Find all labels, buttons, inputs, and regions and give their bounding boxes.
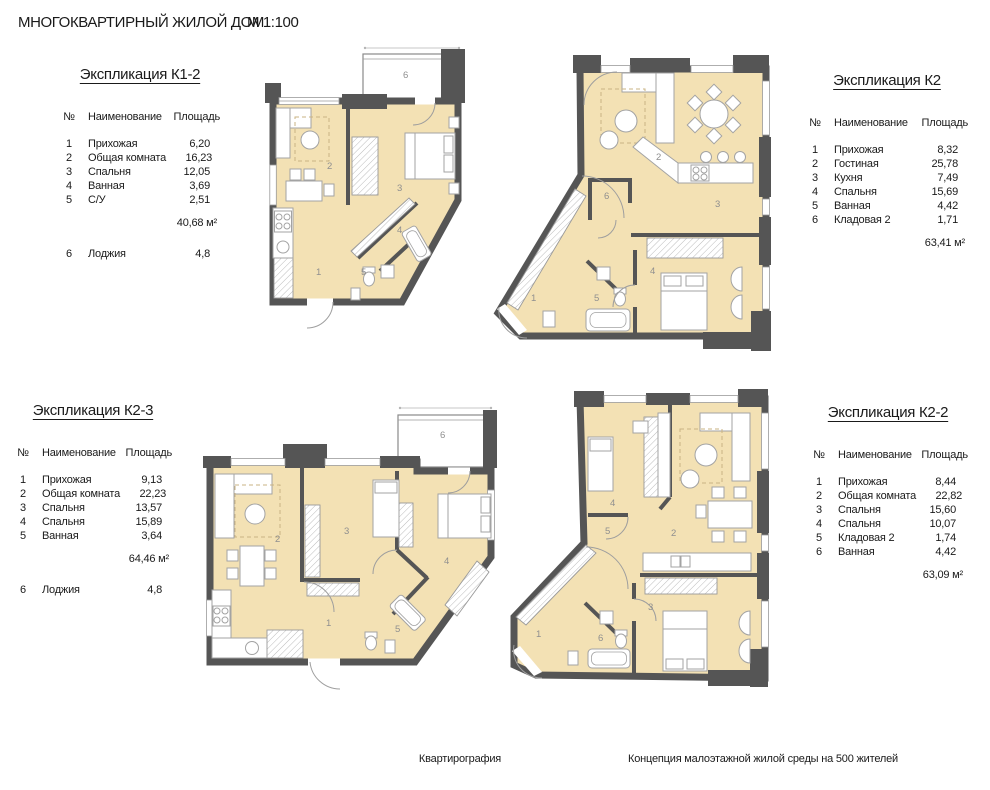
row-area: 15,89 [116,515,172,529]
row-num: 3 [14,501,32,515]
table-title: Экспликация К1-2 [60,66,220,82]
row-name: С/У [78,193,164,207]
coffee-table [695,444,717,466]
bar-stool [701,152,712,163]
sofa [215,474,234,538]
row-name: Общая комната [78,151,166,165]
pillow [444,155,453,172]
table-total: 63,41 м² [806,236,968,250]
footer-right: Концепция малоэтажной жилой среды на 500… [628,753,878,765]
row-area: 3,69 [164,179,220,193]
row-name: Гостиная [824,157,912,171]
table-row: 3Спальня15,60 [810,503,966,517]
room-label: 4 [397,225,402,236]
table-total: 40,68 м² [60,216,220,230]
dining-table [700,100,728,128]
sheet-scale: М 1:100 [247,14,298,31]
row-name: Лоджия [78,247,164,261]
room-label: 6 [598,633,603,644]
row-name: Общая комната [828,489,916,503]
row-num: 5 [810,531,828,545]
row-name: Спальня [32,515,116,529]
row-area: 8,44 [910,475,966,489]
pillow [686,276,703,286]
table-header: № Наименование Площадь [14,446,172,460]
table-row: 2Общая комната22,23 [14,487,172,501]
room-label: 4 [444,556,449,567]
room-label: 3 [648,602,653,613]
room-label: 6 [403,70,408,81]
room-label: 1 [531,293,536,304]
chair [734,531,746,542]
room-label: 3 [715,199,720,210]
row-num: 5 [14,529,32,543]
room-label: 6 [440,430,445,441]
pillow [375,482,397,493]
row-area: 1,74 [910,531,966,545]
chair [734,487,746,498]
table-title: Экспликация К2-3 [14,402,172,418]
row-name: Лоджия [32,583,116,597]
row-area: 25,78 [912,157,968,171]
row-area: 1,71 [912,213,968,227]
col-name: Наименование [32,446,116,460]
row-area: 16,23 [166,151,222,165]
sink [351,288,360,300]
row-num: 1 [60,137,78,151]
row-num: 6 [14,583,32,597]
nightstand [449,117,459,128]
table-row: 1Прихожая8,44 [810,475,966,489]
room-label: 2 [327,161,332,172]
chair [324,184,334,196]
chair [265,568,276,579]
chair [227,568,238,579]
table-row: 2Общая комната16,23 [60,151,220,165]
row-area: 3,64 [116,529,172,543]
row-num: 1 [806,143,824,157]
col-name: Наименование [828,448,912,462]
floor-plan-k2-3: 1 2 3 4 5 6 [195,390,505,690]
table-row: 2Гостиная25,78 [806,157,968,171]
row-num: 6 [806,213,824,227]
row-num: 4 [810,517,828,531]
wc [615,292,626,306]
bar-stool [718,152,729,163]
row-name: Спальня [828,503,910,517]
row-name: Спальня [32,501,116,515]
pillow [590,439,611,451]
row-num: 4 [806,185,824,199]
table-row: 5Ванная4,42 [806,199,968,213]
wardrobe [658,413,670,497]
table-rows: 1Прихожая9,13 2Общая комната22,23 3Спаль… [14,473,172,543]
table-header: № Наименование Площадь [810,448,966,462]
row-area: 12,05 [164,165,220,179]
table-rows: 1Прихожая8,32 2Гостиная25,78 3Кухня7,49 … [806,143,968,227]
row-area: 22,82 [916,489,972,503]
row-num: 4 [14,515,32,529]
sink [246,642,259,655]
wc [366,636,377,650]
row-area: 4,8 [164,247,220,261]
row-name: Прихожая [78,137,164,151]
table-row: 3Спальня12,05 [60,165,220,179]
row-area: 4,42 [912,199,968,213]
dining-table [708,501,752,528]
sink [277,241,289,253]
table-row: 4Ванная3,69 [60,179,220,193]
row-num: 5 [60,193,78,207]
table-row: 3Кухня7,49 [806,171,968,185]
pillow [481,516,490,532]
table-row: 5С/У2,51 [60,193,220,207]
pillow [444,136,453,153]
sofa [656,73,674,143]
table-rows: 1Прихожая6,20 2Общая комната16,23 3Спаль… [60,137,220,207]
row-num: 2 [810,489,828,503]
coffee-table [245,504,265,524]
chair [712,487,724,498]
table-header: № Наименование Площадь [60,110,220,124]
table-row: 4Спальня15,89 [14,515,172,529]
washing-machine [597,267,610,280]
drawing-sheet: { "page": { "title": "МНОГОКВАРТИРНЫЙ ЖИ… [0,0,990,790]
wc [616,634,627,648]
room-label: 1 [316,267,321,278]
room-label: 6 [604,191,609,202]
room-label: 2 [656,152,661,163]
nightstand [633,421,648,433]
chair [290,169,301,180]
washing-machine [381,265,394,278]
explication-table-k2-2: Экспликация К2-2 № Наименование Площадь … [810,404,966,582]
row-area: 13,57 [116,501,172,515]
chair [712,531,724,542]
row-num: 3 [806,171,824,185]
row-name: Ванная [824,199,912,213]
row-num: 6 [810,545,828,559]
explication-table-k2-3: Экспликация К2-3 № Наименование Площадь … [14,402,172,597]
row-area: 9,13 [116,473,172,487]
table-row: 5Кладовая 21,74 [810,531,966,545]
row-name: Прихожая [824,143,912,157]
table-row: 4Спальня10,07 [810,517,966,531]
nightstand [449,183,459,194]
col-area: Площадь [912,448,968,462]
row-num: 2 [806,157,824,171]
table-row: 5Ванная3,64 [14,529,172,543]
row-area: 22,23 [120,487,176,501]
table-title: Экспликация К2 [806,72,968,88]
col-name: Наименование [824,116,912,130]
sink [543,311,555,327]
room-label: 3 [344,526,349,537]
table-row: 1Прихожая9,13 [14,473,172,487]
room-label: 1 [536,629,541,640]
pillow [481,497,490,513]
row-name: Спальня [828,517,910,531]
row-num: 4 [60,179,78,193]
room-label: 3 [397,183,402,194]
sink [681,556,690,567]
row-area: 7,49 [912,171,968,185]
sink [385,640,395,653]
col-num: № [14,446,32,460]
table-row: 4Спальня15,69 [806,185,968,199]
table-total: 63,09 м² [810,568,966,582]
row-name: Ванная [828,545,910,559]
bar-stool [735,152,746,163]
table-title: Экспликация К2-2 [810,404,966,420]
table-header: № Наименование Площадь [806,116,968,130]
row-num: 2 [60,151,78,165]
coffee-table [301,131,319,149]
room-label: 5 [605,526,610,537]
armchair [600,131,618,149]
chair [265,550,276,561]
table-rows: 1Прихожая8,44 2Общая комната22,82 3Спаль… [810,475,966,559]
sofa [732,413,750,481]
floor-plan-k1-2: 1 2 3 4 5 6 [265,45,480,345]
row-name: Спальня [78,165,164,179]
pillow [666,659,683,669]
room-label: 1 [326,618,331,629]
col-area: Площадь [164,110,220,124]
chair [696,505,706,518]
row-name: Кладовая 2 [824,213,912,227]
exterior-walls [512,389,769,687]
dining-table [240,546,264,586]
footer-left: Квартирография [400,753,520,765]
row-num: 1 [14,473,32,487]
room-label: 5 [361,267,366,278]
table-row-loggia: 6Лоджия4,8 [14,583,172,597]
chair [227,550,238,561]
dining-table [286,181,322,201]
row-name: Ванная [78,179,164,193]
washing-machine [600,611,613,624]
table-row: 2Общая комната22,82 [810,489,966,503]
col-num: № [60,110,78,124]
room-label: 5 [594,293,599,304]
row-area: 4,8 [116,583,172,597]
table-row: 6Кладовая 21,71 [806,213,968,227]
floor-plan-k2-2: 1 2 3 4 5 6 [500,385,795,705]
table-row: 1Прихожая6,20 [60,137,220,151]
kitchen-counter [643,553,751,571]
room-label: 2 [671,528,676,539]
row-num: 1 [810,475,828,489]
room-label: 5 [395,624,400,635]
sink [568,651,578,665]
room-label: 4 [650,266,655,277]
row-name: Общая комната [32,487,120,501]
row-num: 3 [810,503,828,517]
row-name: Кухня [824,171,912,185]
table-row: 3Спальня13,57 [14,501,172,515]
row-area: 15,60 [910,503,966,517]
table-total: 64,46 м² [14,552,172,566]
row-area: 2,51 [164,193,220,207]
sofa [276,108,290,158]
pillow [664,276,681,286]
col-name: Наименование [78,110,164,124]
col-num: № [810,448,828,462]
table-row-loggia: 6Лоджия4,8 [60,247,220,261]
col-area: Площадь [116,446,172,460]
explication-table-k2: Экспликация К2 № Наименование Площадь 1П… [806,72,968,250]
row-num: 2 [14,487,32,501]
table-row: 6Ванная4,42 [810,545,966,559]
row-area: 8,32 [912,143,968,157]
room-label: 2 [275,534,280,545]
row-area: 4,42 [910,545,966,559]
row-area: 10,07 [910,517,966,531]
row-num: 3 [60,165,78,179]
row-area: 6,20 [164,137,220,151]
chair [304,169,315,180]
row-name: Спальня [824,185,912,199]
row-name: Прихожая [32,473,116,487]
sheet-title: МНОГОКВАРТИРНЫЙ ЖИЛОЙ ДОМ [18,14,264,31]
sink [671,556,680,567]
row-area: 15,69 [912,185,968,199]
row-name: Ванная [32,529,116,543]
kitchen-counter [678,163,753,183]
table-row: 1Прихожая8,32 [806,143,968,157]
room-label: 4 [610,498,615,509]
col-area: Площадь [912,116,968,130]
row-name: Кладовая 2 [828,531,910,545]
pillow [687,659,704,669]
row-name: Прихожая [828,475,910,489]
armchair [681,470,699,488]
floor-plan-k2: 1 2 3 4 5 6 [485,45,790,360]
col-num: № [806,116,824,130]
explication-table-k1-2: Экспликация К1-2 № Наименование Площадь … [60,66,220,261]
row-num: 5 [806,199,824,213]
coffee-table [615,110,637,132]
row-num: 6 [60,247,78,261]
